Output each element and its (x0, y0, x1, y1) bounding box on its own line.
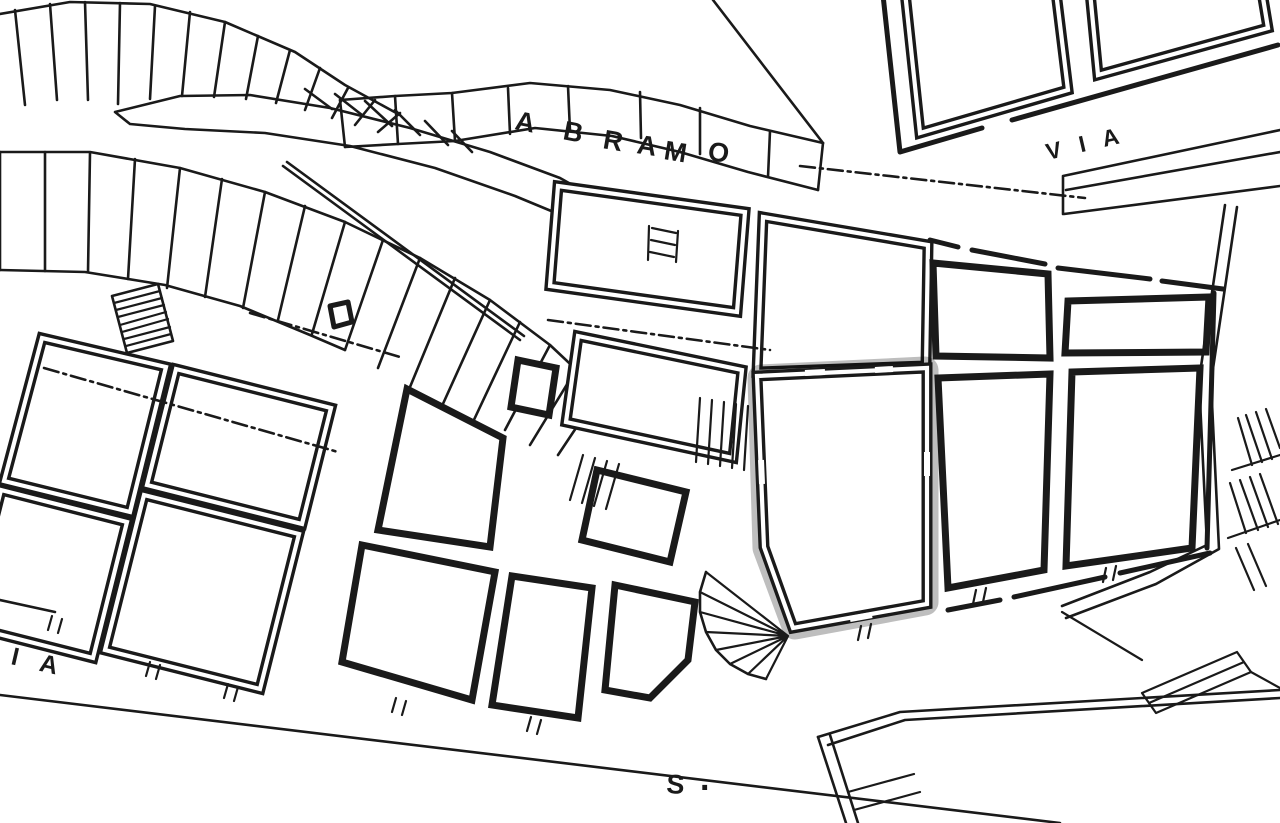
abramo-letter-a2: A (635, 129, 659, 162)
map-page: A B R A M O V I A I A S . (0, 0, 1280, 823)
abramo-letter-r: R (601, 124, 625, 157)
building-highlighted-parcel-walls (757, 368, 927, 628)
abramo-letter-a1: A (513, 105, 538, 138)
abramo-letter-b: B (561, 115, 586, 148)
building-left-complex (0, 302, 352, 689)
building-top-right (883, 0, 1278, 152)
street-label-via-top-right: V I A (1043, 121, 1127, 164)
map-canvas: A B R A M O V I A I A S . (0, 0, 1280, 823)
stair-ladder-left (112, 284, 173, 353)
street-label-abramo: A B R A M O (513, 105, 731, 168)
building-right-block (930, 240, 1223, 610)
abramo-letter-m: M (662, 135, 689, 168)
street-label-s-bottom-dot: . (700, 760, 709, 798)
terrace-fan-upper (0, 2, 400, 132)
street-label-s-bottom: S (666, 769, 686, 800)
abramo-letter-o: O (706, 136, 731, 169)
